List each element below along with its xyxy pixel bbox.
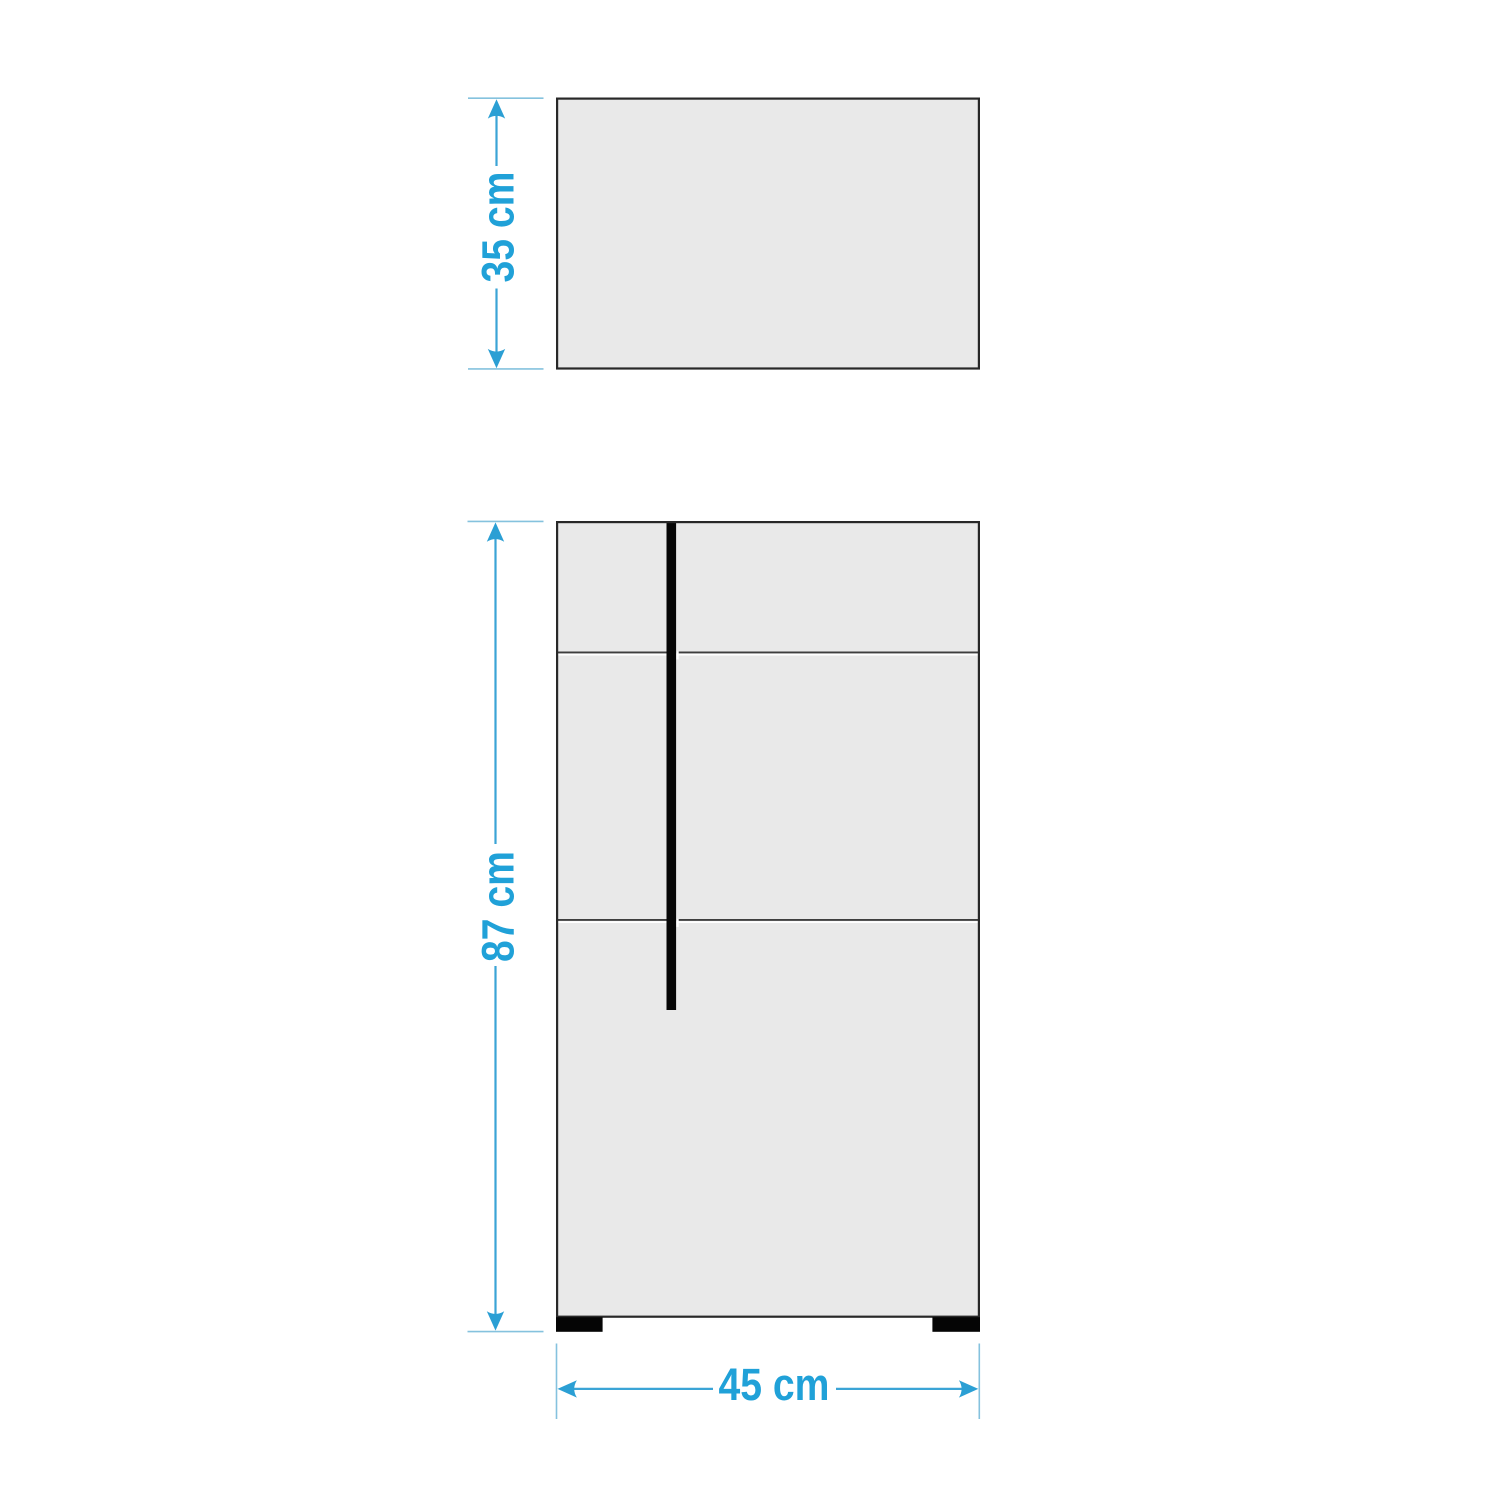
svg-text:87 cm: 87 cm <box>473 851 523 962</box>
svg-text:35 cm: 35 cm <box>473 172 523 283</box>
svg-text:45 cm: 45 cm <box>719 1359 830 1409</box>
